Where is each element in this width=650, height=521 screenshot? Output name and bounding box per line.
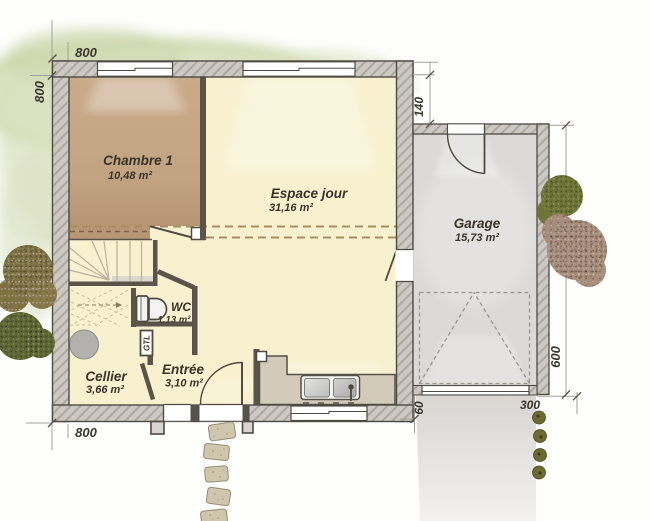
- svg-text:WC: WC: [171, 300, 191, 314]
- svg-text:Chambre 1: Chambre 1: [103, 153, 173, 168]
- svg-text:10,48 m²: 10,48 m²: [108, 170, 152, 182]
- svg-text:1,13 m²: 1,13 m²: [158, 315, 192, 326]
- svg-text:Garage: Garage: [454, 216, 501, 231]
- svg-text:31,16 m²: 31,16 m²: [269, 202, 313, 214]
- svg-text:800: 800: [32, 80, 47, 102]
- svg-text:GTL: GTL: [143, 335, 152, 351]
- svg-text:Espace jour: Espace jour: [271, 186, 348, 201]
- svg-text:3,66 m²: 3,66 m²: [86, 384, 124, 396]
- svg-text:60: 60: [412, 401, 426, 415]
- svg-text:3,10 m²: 3,10 m²: [165, 378, 203, 390]
- svg-text:600: 600: [548, 345, 563, 367]
- svg-text:800: 800: [75, 425, 97, 440]
- svg-text:300: 300: [520, 398, 540, 412]
- svg-text:15,73 m²: 15,73 m²: [455, 232, 499, 244]
- svg-text:Cellier: Cellier: [85, 369, 127, 384]
- svg-text:Entrée: Entrée: [162, 362, 205, 377]
- svg-text:140: 140: [412, 97, 426, 117]
- svg-text:800: 800: [75, 45, 97, 60]
